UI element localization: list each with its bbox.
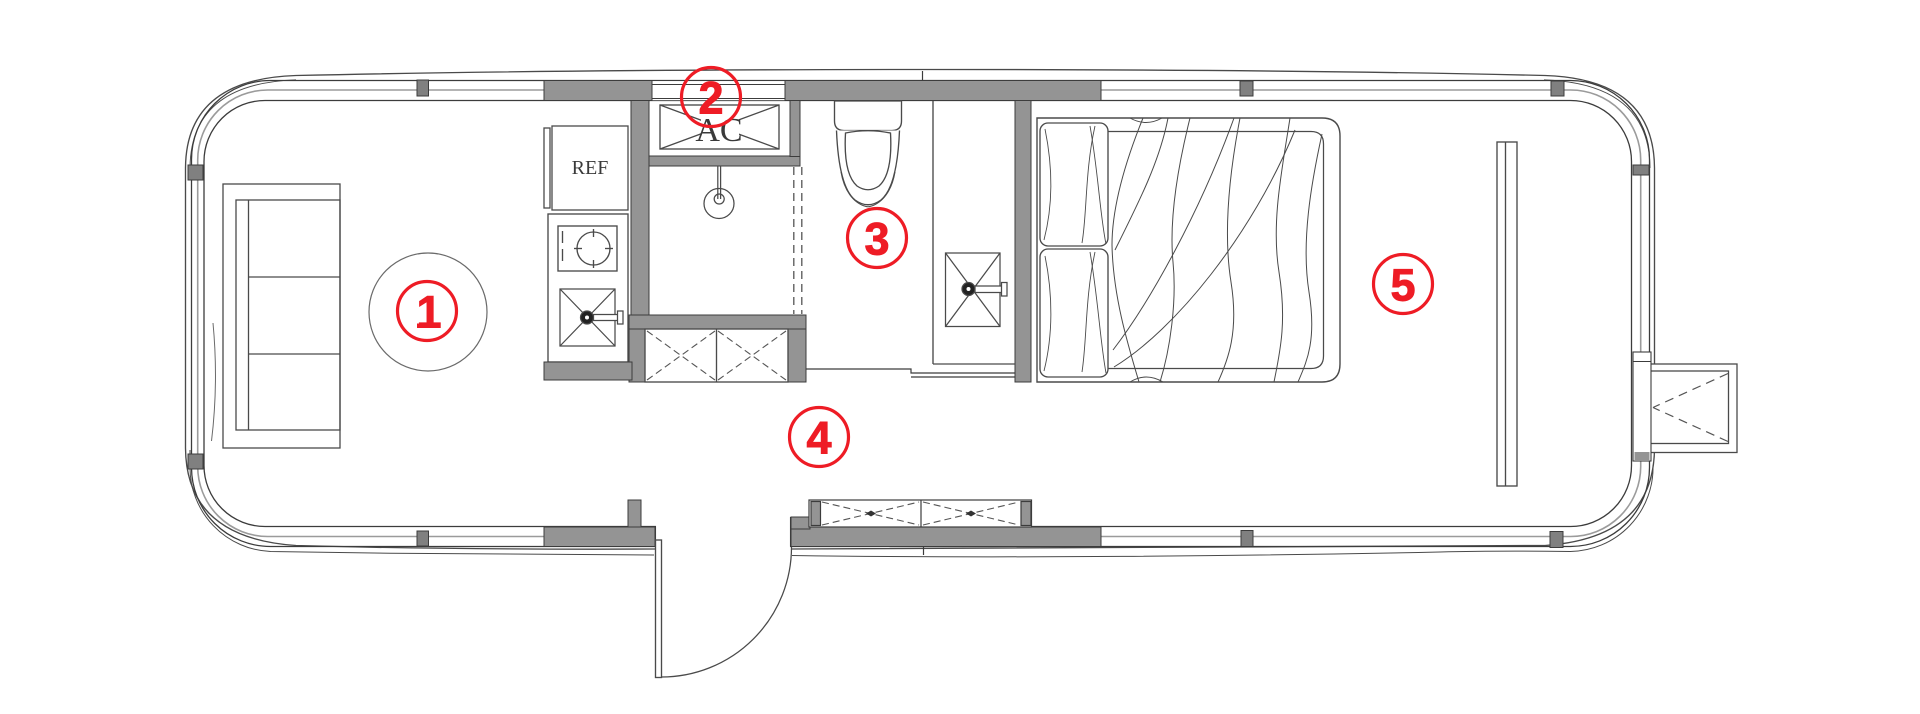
svg-text:REF: REF xyxy=(572,157,609,179)
svg-text:5: 5 xyxy=(1390,260,1415,311)
svg-text:1: 1 xyxy=(416,287,441,338)
svg-text:3: 3 xyxy=(864,214,889,265)
svg-text:2: 2 xyxy=(698,73,723,124)
svg-text:4: 4 xyxy=(806,413,831,464)
